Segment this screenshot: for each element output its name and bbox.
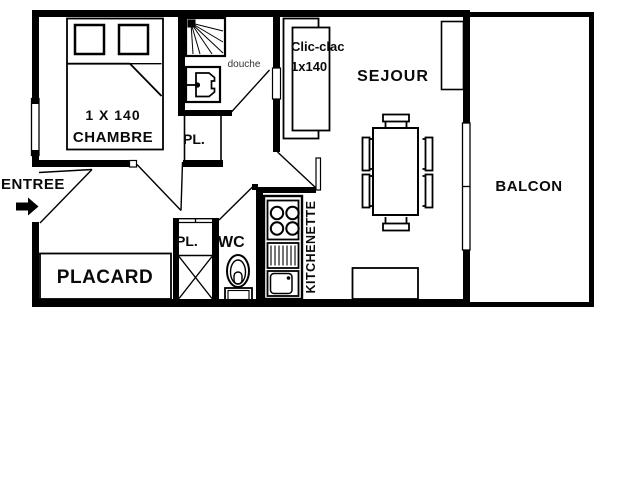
room-label-sejour: SEJOUR [343,69,443,85]
wall-pl-upper-bottom [183,160,223,167]
room-label-pl-lower: PL. [176,234,216,248]
sejour-door-jamb [316,158,321,190]
floor-plan: 1 X 140 CHAMBRE douche PL. Clic-clac 1x1… [0,0,640,480]
duct-shaft-cross [179,257,212,299]
wall-bath-bottom [178,110,232,116]
balcony-outline [467,12,594,307]
kitchenette-unit [264,196,302,299]
room-label-balcon: BALCON [479,179,579,194]
drainer-ribs [271,246,295,266]
entry-label: ENTREE [1,177,71,192]
wall-pl-lower-left [173,218,179,299]
chambre-door-hinge-notch [130,161,137,168]
room-label-kitchenette: KITCHENETTE [305,195,321,299]
chambre-door-swing [137,162,183,211]
pillow-right [119,25,148,54]
chair-right-1 [423,138,433,171]
chair-left-1 [363,138,373,171]
room-label-wc: WC [218,235,258,251]
wc-door-swing [219,187,253,220]
chair-left-2 [363,175,373,208]
chair-right-2 [423,175,433,208]
wall-chambre-bottom [32,160,137,167]
wall-top [32,10,470,17]
balcony-bottom-edge [467,302,594,307]
wardrobe [442,22,464,90]
entry-arrow-icon [16,198,39,216]
room-label-douche: douche [224,60,264,70]
wall-right-lower [463,250,470,307]
toilet-tank-inner [228,291,249,300]
wall-stub-wc-door [252,184,258,190]
wall-chambre-right [178,10,185,110]
sejour-door-swing [278,152,317,188]
sofa-bed [284,19,330,139]
dining-table [373,128,418,215]
chair-top [383,115,409,128]
pl-lower-front [179,219,212,223]
sideboard [353,268,419,299]
sink-drain [287,276,291,280]
basin-drain [195,82,200,87]
sofa-bed-label-line2: 1x140 [291,60,327,73]
shower [186,18,225,56]
room-label-placard: PLACARD [45,268,165,287]
wall-left-lower [32,222,39,307]
window-sejour-balcon [463,123,471,250]
pillow-left [75,25,104,54]
wall-kitchenette-top [256,187,316,193]
bath-doorway [273,68,281,99]
sofa-bed-label-line1: Clic-clac [291,40,344,53]
balcony-top-edge [467,12,594,17]
toilet-seat-mark [234,272,242,284]
toilet [225,255,252,300]
dining-table-set [363,115,433,231]
bed-size-label: 1 X 140 [63,108,163,122]
window-chambre [32,99,40,156]
shower-spray-lines [191,23,223,54]
room-label-pl-upper: PL. [183,132,223,146]
wall-wc-left [212,218,219,299]
chair-bottom [383,217,409,231]
balcony-right-edge [589,12,594,307]
room-label-chambre: CHAMBRE [63,130,163,145]
toilet-tank-outer [225,288,252,300]
blanket-fold-diagonal [130,64,162,96]
stove-burners [271,207,299,235]
wash-basin [186,67,220,102]
bath-door-swing [231,70,270,113]
